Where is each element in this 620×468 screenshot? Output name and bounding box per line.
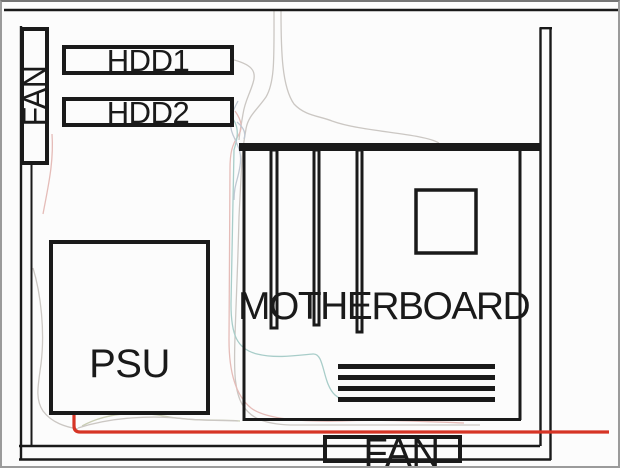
motherboard-structure — [239, 143, 540, 420]
ram-slot-3 — [338, 386, 495, 391]
hdd2-label: HDD2 — [107, 97, 189, 128]
fan-bottom-box: FAN — [323, 435, 462, 463]
motherboard-top-rail — [239, 143, 540, 151]
fan-left-label: FAN — [19, 66, 51, 127]
cable-green-under-psu — [82, 413, 240, 426]
fan-bottom-label: FAN — [363, 433, 439, 468]
ram-slot-2 — [338, 375, 495, 380]
hdd1-label: HDD1 — [107, 45, 189, 76]
fan-left-box: FAN — [20, 27, 49, 165]
case-right-wall — [540, 28, 553, 460]
psu-label: PSU — [53, 344, 206, 384]
cpu-socket — [416, 190, 476, 253]
hdd1-box: HDD1 — [62, 45, 234, 75]
psu-box: PSU — [49, 240, 210, 415]
case-diagram: FAN HDD1 HDD2 PSU MOTHERBOARD FAN — [0, 0, 620, 468]
cable-gray-top-2 — [281, 11, 439, 143]
ram-slot-1 — [338, 364, 495, 369]
hdd2-box: HDD2 — [62, 97, 234, 127]
motherboard-label: MOTHERBOARD — [238, 287, 529, 326]
ram-slot-4 — [338, 397, 495, 402]
cable-gray-under-psu — [78, 417, 238, 428]
cable-teal-main — [231, 119, 369, 401]
